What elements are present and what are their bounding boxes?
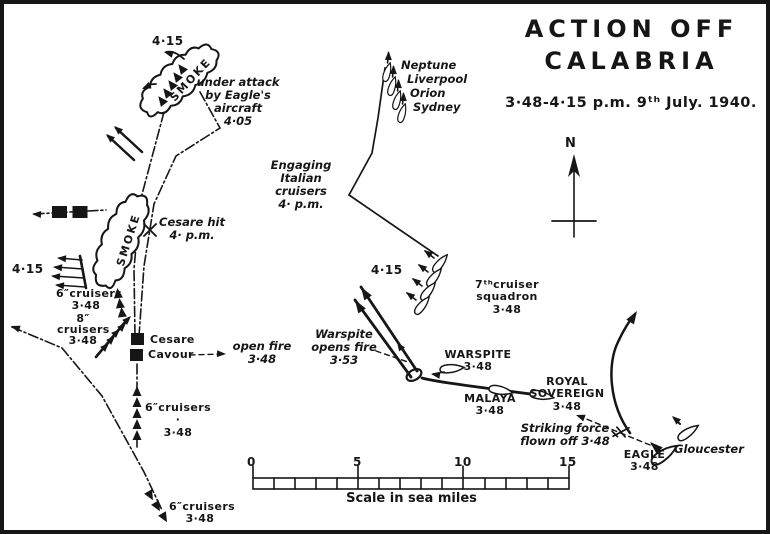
map-title-line1: ACTION OFF [509,16,754,43]
cesare-cavour-symbols [130,333,144,440]
map-title-line2: CALABRIA [509,48,754,75]
ship-label-liverpool: Liverpool [407,73,467,86]
retreat-double-arrows [104,123,142,160]
seventh-cruiser-squadron-label: 7ᵗʰcruiser squadron 3·48 [446,279,568,316]
ship-label-sydney: Sydney [413,101,461,114]
scale-tick-5: 5 [353,456,362,469]
compass-north [552,154,596,237]
open-fire-annotation: open fire 3·48 [232,340,292,366]
under-attack-annotation: under attack by Eagle's aircraft 4·05 [180,76,296,128]
gloucester-symbol [670,413,700,443]
warspite-opens-fire-annotation: Warspite opens fire 3·53 [307,328,381,367]
ship-label-cavour: Cavour [148,349,194,361]
cruisers6-south-symbols [144,489,171,524]
scale-tick-15: 15 [559,456,577,469]
ship-label-eagle: EAGLE 3·48 [617,449,672,474]
scale-tick-10: 10 [454,456,472,469]
ship-label-neptune: Neptune [401,59,456,72]
ship-label-cesare: Cesare [150,334,195,346]
seventh-cruiser-squadron-symbols [404,247,449,316]
compass-north-label: N [565,137,576,152]
cesare-hit-annotation: Cesare hit 4· p.m. [155,216,229,242]
battle-map: ACTION OFF CALABRIA 3·48-4·15 p.m. 9ᵗʰ J… [0,0,770,534]
time-415-fleet: 4·15 [371,264,403,277]
ship-label-royal-sovereign: ROYAL SOVEREIGN 3·48 [517,376,617,413]
map-subtitle: 3·48-4·15 p.m. 9ᵗʰ July. 1940. [502,95,760,111]
eastern-curved-track [611,314,635,433]
cruisers6-mid-label: 6″cruisers · 3·48 [144,402,212,439]
cruisers8-label: 8″ cruisers 3·48 [57,313,109,346]
scale-tick-0: 0 [247,456,256,469]
ship-label-malaya: MALAYA 3·48 [460,393,520,418]
scale-caption: Scale in sea miles [334,492,489,507]
cruisers6-south-label: 6″cruisers 3·48 [169,501,231,526]
open-fire-arrowhead [217,350,226,357]
time-415-north: 4·15 [152,35,184,48]
ship-label-warspite: WARSPITE 3·48 [437,349,519,374]
ship-label-gloucester: Gloucester [674,443,744,456]
time-415-west: 4·15 [12,263,44,276]
cruisers6-west-label: 6″cruisers 3·48 [56,288,116,313]
west-415-arrows [51,255,86,290]
scale-bar-graphic [253,466,569,489]
engaging-annotation: Engaging Italian cruisers 4· p.m. [253,159,349,211]
ship-label-orion: Orion [410,87,445,100]
striking-force-arrowhead [575,412,586,422]
striking-force-annotation: Striking force flown off 3·48 [516,422,614,448]
west-track-arrowhead [32,211,41,218]
italian-fleet-tracks [12,92,220,510]
